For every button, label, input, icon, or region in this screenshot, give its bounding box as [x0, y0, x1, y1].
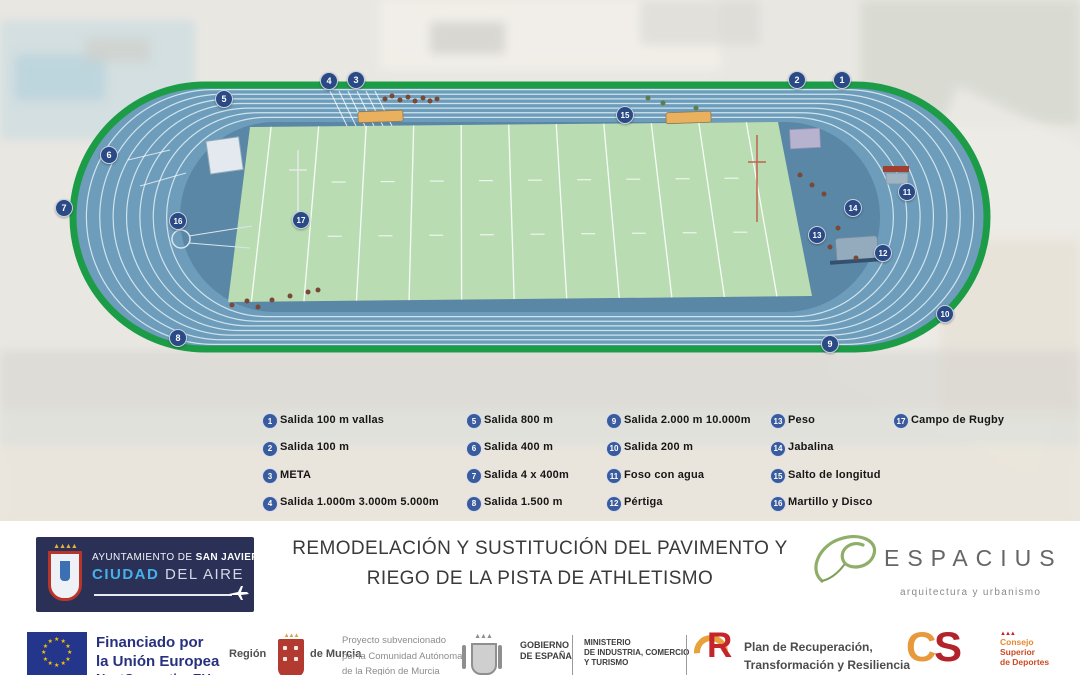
- legend-label-12: Pértiga: [624, 496, 663, 508]
- ministerio-line3: Y TURISMO: [584, 658, 689, 668]
- legend-num-7: 7: [466, 468, 482, 484]
- project-title-line1: REMODELACIÓN Y SUSTITUCIÓN DEL PAVIMENTO…: [270, 534, 810, 564]
- athlete-figure: [413, 99, 418, 104]
- subsidy-text: Proyecto subvencionado por la Comunidad …: [342, 633, 462, 675]
- crest-shield: [48, 551, 82, 601]
- eu-star-icon: ★: [48, 661, 53, 667]
- rugby-field: [228, 122, 812, 302]
- csd-line3: de Deportes: [1000, 657, 1049, 667]
- track-marker-10: 10: [936, 305, 954, 323]
- murcia-label-left: Región: [229, 648, 266, 660]
- subsidy-line2: por la Comunidad Autónoma: [342, 649, 462, 665]
- legend-num-11: 11: [606, 468, 622, 484]
- athlete-figure: [306, 290, 311, 295]
- eu-funding-text: Financiado por la Unión Europea: [96, 633, 219, 671]
- athlete-figure: [435, 97, 440, 102]
- legend-num-2: 2: [262, 441, 278, 457]
- subsidy-line3: de la Región de Murcia: [342, 664, 462, 675]
- murcia-crest-icon: ▲▲▲: [276, 633, 306, 675]
- gobierno-line1: GOBIERNO: [520, 640, 572, 651]
- legend-num-9: 9: [606, 413, 622, 429]
- legend-num-5: 5: [466, 413, 482, 429]
- long-jump-pit: [666, 111, 711, 124]
- athlete-figure: [694, 106, 699, 111]
- athlete-figure: [828, 245, 833, 250]
- track-marker-7: 7: [55, 199, 73, 217]
- arms-pillar-left: [462, 645, 466, 669]
- divider: [686, 635, 687, 675]
- athlete-figure: [256, 305, 261, 310]
- long-jump-pit: [358, 110, 403, 123]
- legend-label-16: Martillo y Disco: [788, 496, 873, 508]
- legend-num-12: 12: [606, 496, 622, 512]
- poster: 1234567891011121314151617 1Salida 100 m …: [0, 0, 1080, 675]
- track-marker-2: 2: [788, 71, 806, 89]
- track-marker-14: 14: [844, 199, 862, 217]
- athlete-figure: [854, 256, 859, 261]
- spain-coat-of-arms-icon: ▲▲▲: [452, 633, 514, 675]
- legend-num-10: 10: [606, 441, 622, 457]
- legend-label-3: META: [280, 469, 311, 481]
- footer: ▲▲▲▲ AYUNTAMIENTO DE SAN JAVIER CIUDAD D…: [0, 521, 1080, 675]
- track-marker-5: 5: [215, 90, 233, 108]
- athlete-figure: [398, 98, 403, 103]
- athlete-figure: [836, 226, 841, 231]
- legend-label-6: Salida 400 m: [484, 441, 553, 453]
- legend-num-4: 4: [262, 496, 278, 512]
- legend-num-3: 3: [262, 468, 278, 484]
- prtr-line2: Transformación y Resiliencia: [744, 656, 910, 674]
- legend-label-7: Salida 4 x 400m: [484, 469, 569, 481]
- track-marker-17: 17: [292, 211, 310, 229]
- track-marker-8: 8: [169, 329, 187, 347]
- eu-star-icon: ★: [61, 661, 66, 667]
- prtr-line1: Plan de Recuperación,: [744, 638, 910, 656]
- eu-star-icon: ★: [65, 644, 70, 650]
- municipality-logo: ▲▲▲▲ AYUNTAMIENTO DE SAN JAVIER CIUDAD D…: [36, 537, 254, 612]
- track-marker-16: 16: [169, 212, 187, 230]
- legend-label-8: Salida 1.500 m: [484, 496, 563, 508]
- legend-label-10: Salida 200 m: [624, 441, 693, 453]
- legend-label-9: Salida 2.000 m 10.000m: [624, 414, 751, 426]
- athlete-figure: [646, 96, 651, 101]
- arms-shield: [471, 643, 497, 675]
- legend-num-14: 14: [770, 441, 786, 457]
- legend-label-2: Salida 100 m: [280, 441, 349, 453]
- csd-logo-icon: S: [934, 623, 962, 671]
- athlete-figure: [798, 173, 803, 178]
- legend-num-1: 1: [262, 413, 278, 429]
- ministerio-line2: DE INDUSTRIA, COMERCIO: [584, 648, 689, 658]
- csd-logo-icon: C: [906, 623, 936, 671]
- track-marker-15: 15: [616, 106, 634, 124]
- legend-num-8: 8: [466, 496, 482, 512]
- gobierno-text: GOBIERNO DE ESPAÑA: [520, 640, 572, 662]
- legend-label-17: Campo de Rugby: [911, 414, 1004, 426]
- legend-num-17: 17: [893, 413, 909, 429]
- subsidy-line1: Proyecto subvencionado: [342, 633, 462, 649]
- legend-label-13: Peso: [788, 414, 815, 426]
- ministerio-line1: MINISTERIO: [584, 638, 689, 648]
- studio-name: ESPACIUS: [884, 545, 1063, 572]
- athlete-figure: [421, 96, 426, 101]
- espacius-swirl-icon: [810, 527, 886, 593]
- eu-line1: Financiado por: [96, 633, 219, 652]
- legend-num-15: 15: [770, 468, 786, 484]
- track-marker-4: 4: [320, 72, 338, 90]
- athlete-figure: [245, 299, 250, 304]
- legend-label-11: Foso con agua: [624, 469, 704, 481]
- legend-label-1: Salida 100 m vallas: [280, 414, 384, 426]
- eu-star-icon: ★: [67, 650, 72, 656]
- track-marker-13: 13: [808, 226, 826, 244]
- san-javier-crest-icon: ▲▲▲▲: [44, 543, 86, 603]
- municipality-line2: CIUDAD DEL AIRE: [92, 566, 244, 583]
- studio-tagline: arquitectura y urbanismo: [900, 587, 1041, 598]
- mat: [790, 128, 821, 149]
- eu-star-icon: ★: [65, 657, 70, 663]
- csd-text: ▲▲▲ Consejo Superior de Deportes: [1000, 631, 1049, 667]
- eu-star-icon: ★: [48, 639, 53, 645]
- csd-line1: Consejo: [1000, 637, 1049, 647]
- legend-label-15: Salto de longitud: [788, 469, 881, 481]
- eu-star-icon: ★: [41, 650, 46, 656]
- eu-star-icon: ★: [54, 663, 59, 669]
- arms-pillar-right: [498, 645, 502, 669]
- legend-num-16: 16: [770, 496, 786, 512]
- athlete-figure: [390, 94, 395, 99]
- eu-star-icon: ★: [54, 637, 59, 643]
- legend-num-13: 13: [770, 413, 786, 429]
- legend-label-5: Salida 800 m: [484, 414, 553, 426]
- track-marker-9: 9: [821, 335, 839, 353]
- steeplechase-barrier: [883, 166, 909, 172]
- eu-line2: la Unión Europea: [96, 652, 219, 671]
- divider: [572, 635, 573, 675]
- prtr-logo-letter: R: [707, 626, 732, 666]
- legend-num-6: 6: [466, 441, 482, 457]
- athlete-figure: [270, 298, 275, 303]
- high-jump-mat: [206, 137, 243, 174]
- arms-crown: ▲▲▲: [466, 633, 500, 641]
- project-title-line2: RIEGO DE LA PISTA DE ATHLETISMO: [270, 564, 810, 594]
- murcia-shield: [278, 639, 304, 675]
- athlete-figure: [383, 97, 388, 102]
- airplane-icon: [229, 586, 249, 600]
- athlete-figure: [406, 95, 411, 100]
- project-title: REMODELACIÓN Y SUSTITUCIÓN DEL PAVIMENTO…: [270, 534, 810, 594]
- track-marker-6: 6: [100, 146, 118, 164]
- csd-line2: Superior: [1000, 647, 1049, 657]
- eu-flag-icon: ★★★★★★★★★★★★: [27, 632, 87, 675]
- track-marker-1: 1: [833, 71, 851, 89]
- prtr-text: Plan de Recuperación, Transformación y R…: [744, 638, 910, 674]
- athlete-figure: [661, 101, 666, 106]
- legend-label-4: Salida 1.000m 3.000m 5.000m: [280, 496, 439, 508]
- legend-label-14: Jabalina: [788, 441, 834, 453]
- athlete-figure: [316, 288, 321, 293]
- track-marker-12: 12: [874, 244, 892, 262]
- gobierno-line2: DE ESPAÑA: [520, 651, 572, 662]
- municipality-line1: AYUNTAMIENTO DE SAN JAVIER: [92, 552, 259, 563]
- jet-trail-line: [94, 594, 232, 596]
- crest-crown: ▲▲▲▲: [48, 543, 82, 550]
- athlete-figure: [810, 183, 815, 188]
- track-marker-11: 11: [898, 183, 916, 201]
- athlete-figure: [822, 192, 827, 197]
- eu-nextgeneration-text: NextGenerationEU: [96, 671, 211, 675]
- ministerio-text: MINISTERIO DE INDUSTRIA, COMERCIO Y TURI…: [584, 638, 689, 668]
- track-marker-3: 3: [347, 71, 365, 89]
- athlete-figure: [230, 303, 235, 308]
- athlete-figure: [428, 99, 433, 104]
- eu-star-icon: ★: [43, 657, 48, 663]
- athlete-figure: [288, 294, 293, 299]
